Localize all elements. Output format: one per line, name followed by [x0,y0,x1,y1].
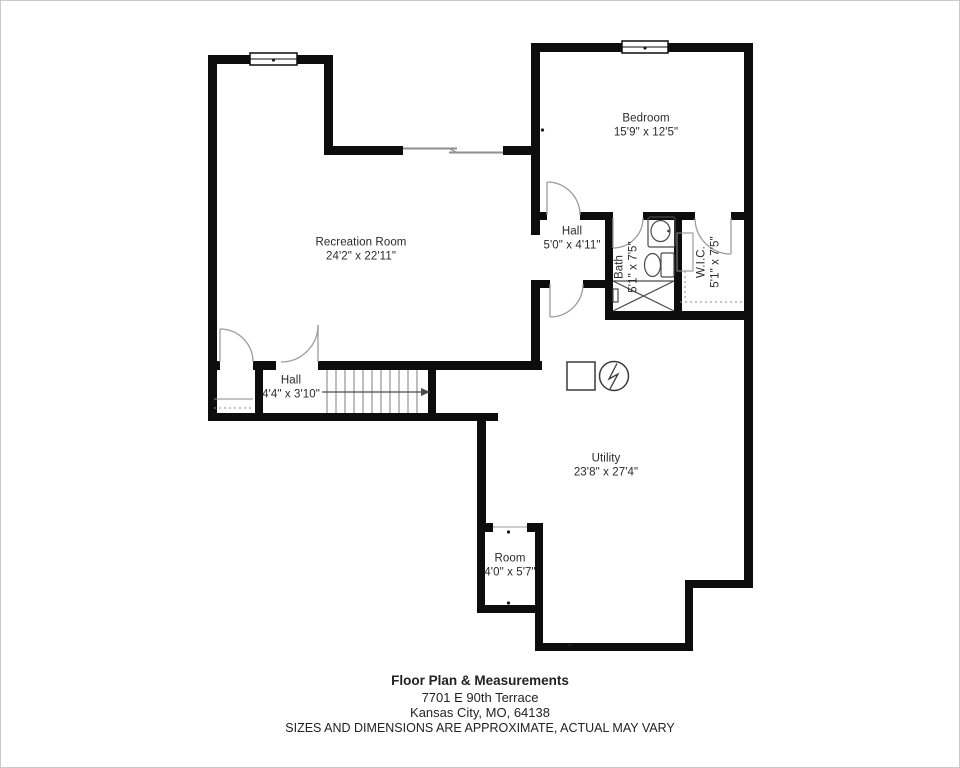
sliding-door-icon [403,149,503,153]
door-swing-icon [220,329,253,362]
door-swing-icon [547,182,580,215]
room-dimensions: 5'0" x 4'11" [543,239,600,253]
furnace-icon [567,362,595,390]
footer-address-line1: 7701 E 90th Terrace [0,690,960,706]
room-name: Bedroom [614,113,678,127]
closet-shelf-icon [214,399,253,408]
upper-hall-label: Hall 5'0" x 4'11" [543,226,600,253]
floor-plan-page: Bedroom 15'9" x 12'5" Recreation Room 24… [0,0,960,768]
door-swing-icon [550,284,583,317]
stair-direction-arrow-icon [322,388,430,396]
bath-label: Bath 5'1" x 7'5" [614,241,641,292]
room-dimensions: 4'0" x 5'7" [484,566,535,580]
lower-hall-label: Hall 4'4" x 3'10" [262,375,320,402]
doors [220,182,731,362]
room-dimensions: 5'1" x 7'5" [627,241,641,292]
floor-plan-drawing [0,0,960,768]
door-swing-icon [281,325,318,362]
room-name: Room [484,553,535,567]
room-name: Utility [574,453,638,467]
room-name: Bath [614,241,628,292]
room-dimensions: 5'1" x 7'5" [709,236,723,287]
room-dimensions: 23'8" x 27'4" [574,466,638,480]
staircase [322,370,430,413]
room-name: Recreation Room [316,237,407,251]
room-dimensions: 15'9" x 12'5" [614,126,678,140]
utility-label: Utility 23'8" x 27'4" [574,453,638,480]
water-heater-icon [600,362,629,391]
utility-equipment [567,362,629,391]
footer-title: Floor Plan & Measurements [0,673,960,689]
wic-label: W.I.C. 5'1" x 7'5" [696,236,723,287]
room-dimensions: 24'2" x 22'11" [316,250,407,264]
room-name: Hall [262,375,320,389]
small-room-label: Room 4'0" x 5'7" [484,553,535,580]
recreation-room-label: Recreation Room 24'2" x 22'11" [316,237,407,264]
bedroom-label: Bedroom 15'9" x 12'5" [614,113,678,140]
room-name: W.I.C. [696,236,710,287]
sink-icon [648,217,675,247]
toilet-icon [645,253,675,277]
room-dimensions: 4'4" x 3'10" [262,388,320,402]
footer-block: Floor Plan & Measurements 7701 E 90th Te… [0,673,960,737]
room-name: Hall [543,226,600,240]
footer-address-line2: Kansas City, MO, 64138 [0,705,960,721]
footer-disclaimer: SIZES AND DIMENSIONS ARE APPROXIMATE, AC… [0,721,960,737]
